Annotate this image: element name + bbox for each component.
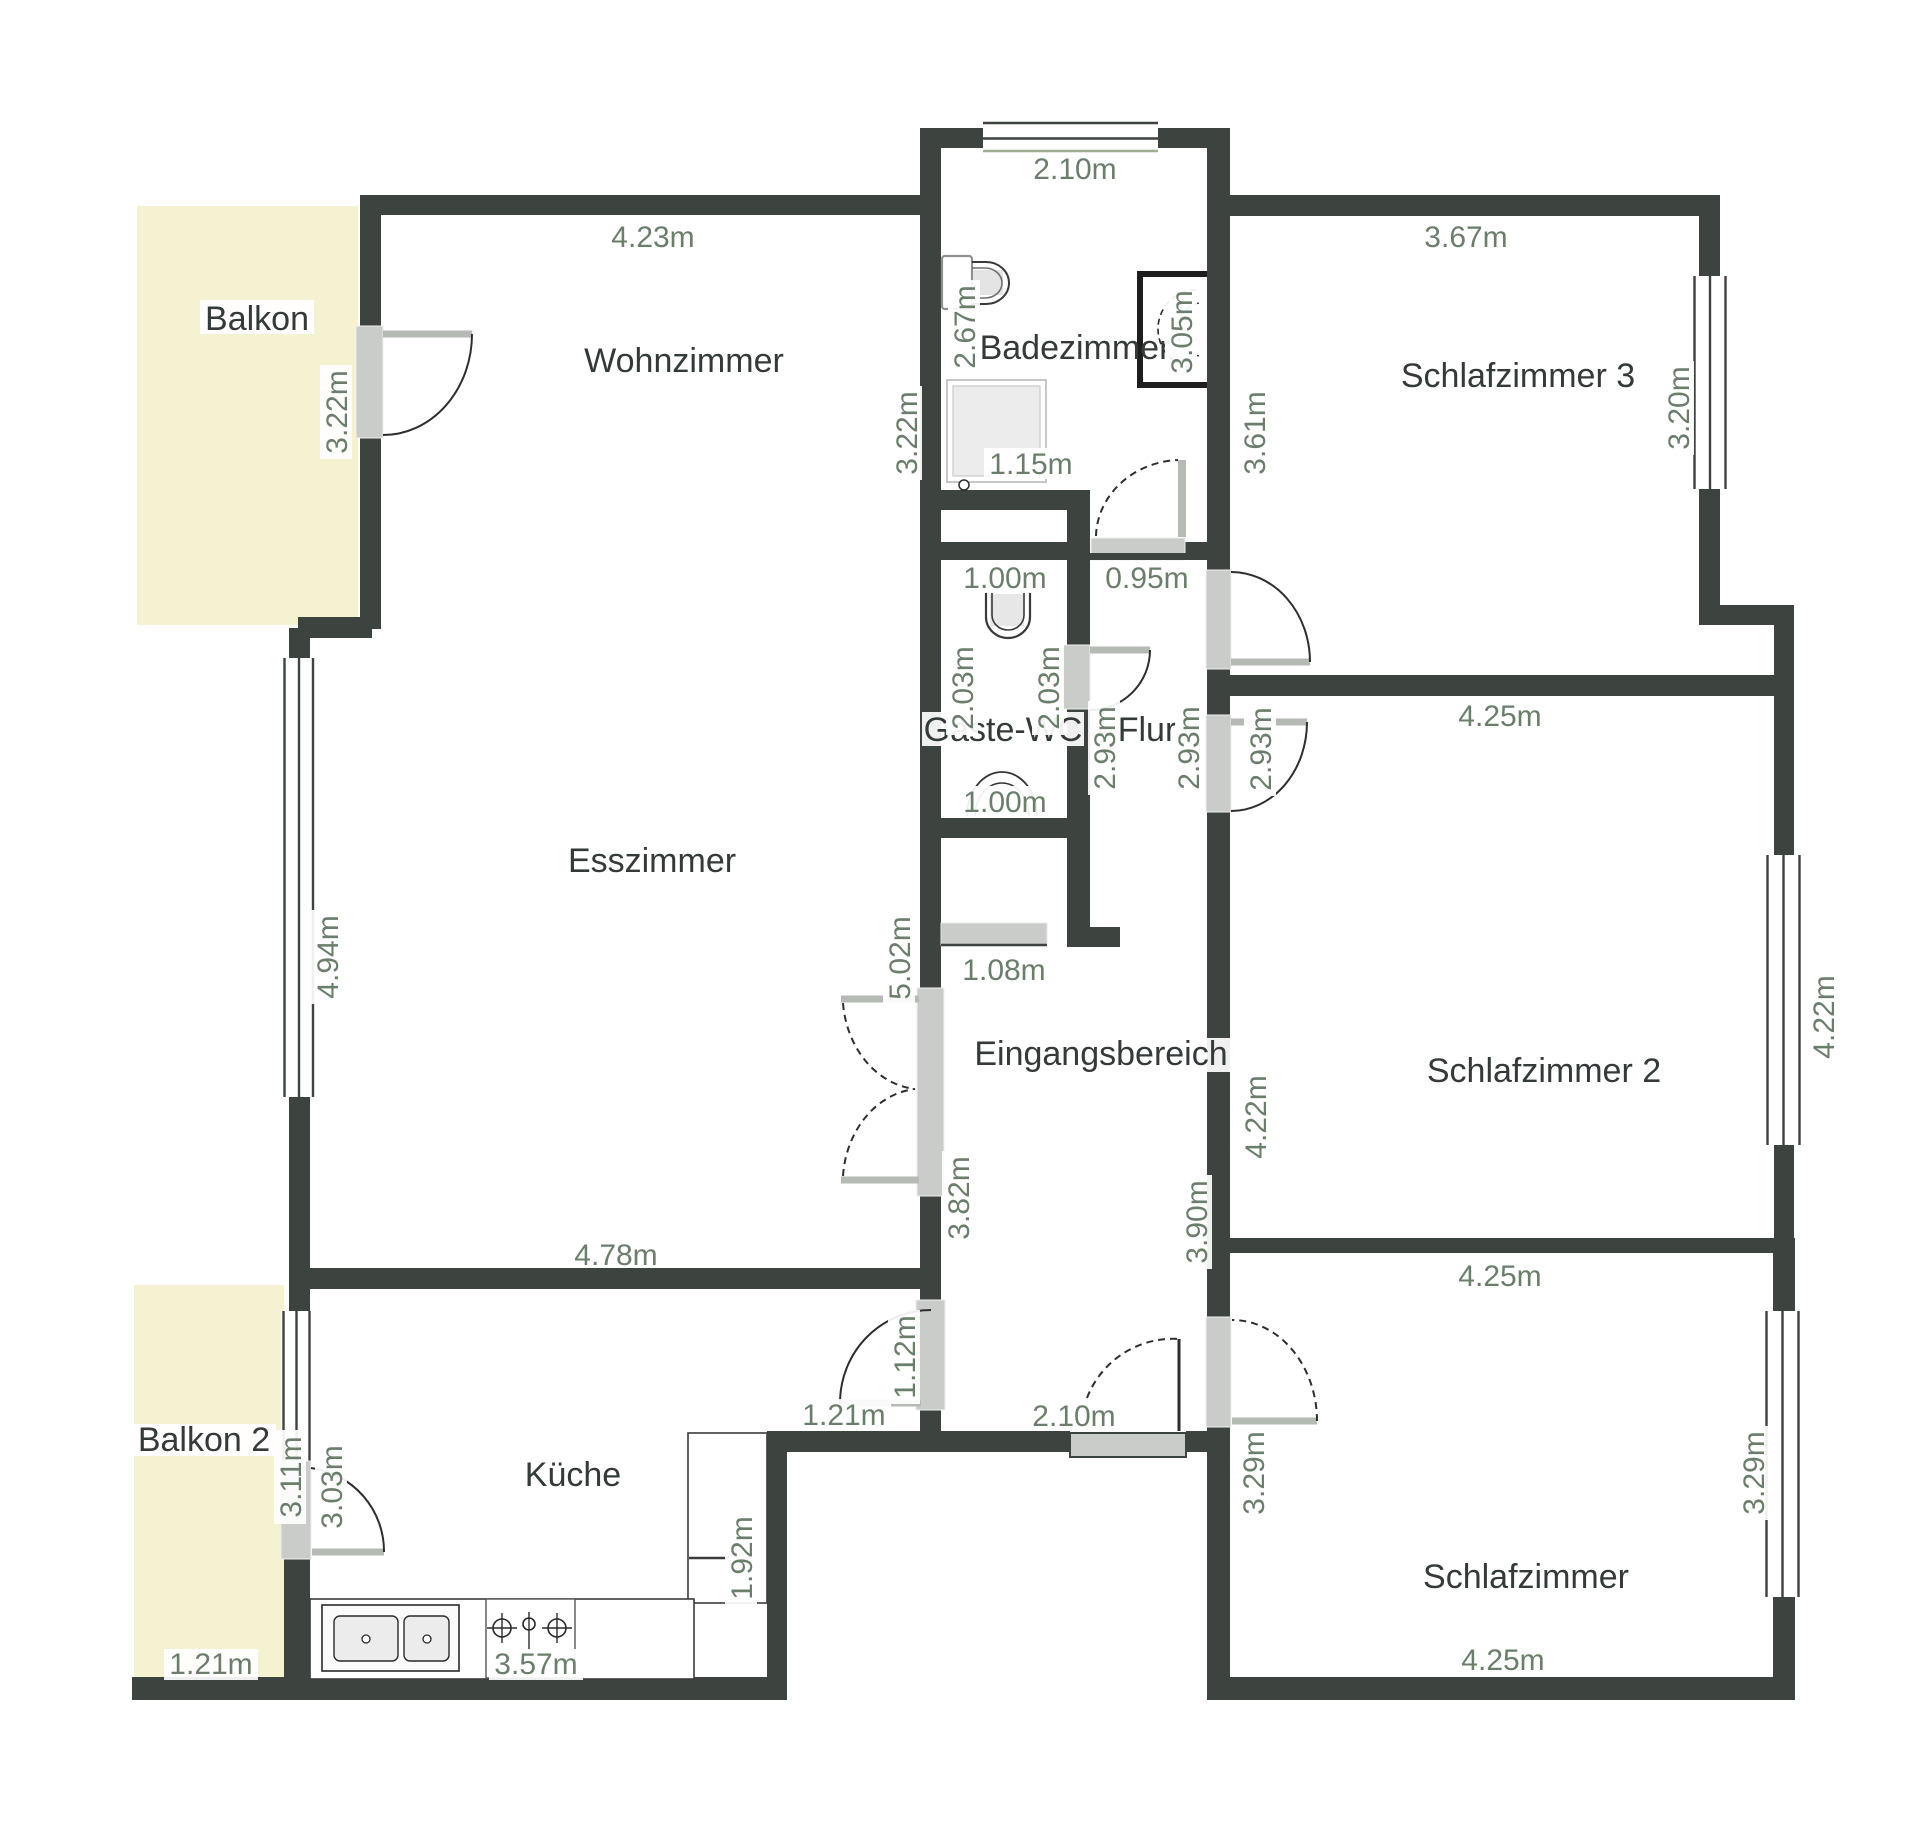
svg-text:1.15m: 1.15m — [989, 448, 1072, 481]
svg-text:4.23m: 4.23m — [611, 221, 694, 254]
svg-text:1.00m: 1.00m — [963, 562, 1046, 595]
svg-text:4.25m: 4.25m — [1458, 700, 1541, 733]
svg-text:2.03m: 2.03m — [947, 646, 980, 729]
svg-text:3.67m: 3.67m — [1424, 221, 1507, 254]
svg-text:3.11m: 3.11m — [275, 1436, 308, 1517]
svg-text:3.22m: 3.22m — [321, 370, 354, 453]
svg-text:2.10m: 2.10m — [1032, 1400, 1115, 1433]
svg-text:Flur: Flur — [1118, 711, 1177, 749]
svg-text:Küche: Küche — [525, 1456, 621, 1494]
svg-text:4.78m: 4.78m — [574, 1239, 657, 1272]
svg-text:1.21m: 1.21m — [802, 1399, 885, 1432]
svg-text:4.25m: 4.25m — [1458, 1260, 1541, 1293]
svg-text:Wohnzimmer: Wohnzimmer — [584, 342, 784, 380]
svg-text:1.21m: 1.21m — [169, 1648, 252, 1681]
svg-text:5.02m: 5.02m — [884, 916, 917, 999]
svg-text:4.94m: 4.94m — [312, 915, 345, 998]
svg-text:3.57m: 3.57m — [494, 1648, 577, 1681]
svg-text:Schlafzimmer: Schlafzimmer — [1423, 1558, 1629, 1596]
svg-text:Balkon: Balkon — [205, 300, 309, 338]
svg-text:Badezimmer: Badezimmer — [980, 329, 1171, 367]
svg-text:1.08m: 1.08m — [962, 954, 1045, 987]
svg-text:3.22m: 3.22m — [891, 391, 924, 474]
svg-text:3.29m: 3.29m — [1738, 1431, 1771, 1514]
svg-text:Esszimmer: Esszimmer — [568, 842, 736, 880]
svg-text:2.67m: 2.67m — [949, 285, 982, 368]
svg-text:Balkon 2: Balkon 2 — [138, 1421, 270, 1459]
svg-text:2.93m: 2.93m — [1089, 706, 1122, 789]
svg-text:Schlafzimmer 3: Schlafzimmer 3 — [1401, 357, 1635, 395]
svg-text:3.90m: 3.90m — [1181, 1180, 1214, 1263]
svg-text:4.22m: 4.22m — [1808, 975, 1841, 1058]
svg-text:3.61m: 3.61m — [1239, 391, 1272, 474]
svg-text:2.93m: 2.93m — [1245, 707, 1278, 790]
svg-text:1.00m: 1.00m — [963, 786, 1046, 819]
svg-text:1.12m: 1.12m — [889, 1315, 922, 1398]
svg-text:3.82m: 3.82m — [943, 1156, 976, 1239]
svg-text:Schlafzimmer 2: Schlafzimmer 2 — [1427, 1052, 1661, 1090]
svg-text:3.05m: 3.05m — [1166, 290, 1199, 373]
svg-text:2.10m: 2.10m — [1033, 153, 1116, 186]
svg-text:4.25m: 4.25m — [1461, 1644, 1544, 1677]
svg-text:3.03m: 3.03m — [316, 1445, 349, 1528]
svg-text:1.92m: 1.92m — [726, 1516, 759, 1599]
svg-text:2.93m: 2.93m — [1173, 706, 1206, 789]
svg-text:0.95m: 0.95m — [1105, 562, 1188, 595]
svg-text:3.20m: 3.20m — [1663, 366, 1696, 449]
svg-text:Eingangsbereich: Eingangsbereich — [974, 1035, 1227, 1073]
svg-text:4.22m: 4.22m — [1240, 1075, 1273, 1158]
svg-text:3.29m: 3.29m — [1238, 1431, 1271, 1514]
svg-text:2.03m: 2.03m — [1033, 646, 1066, 729]
